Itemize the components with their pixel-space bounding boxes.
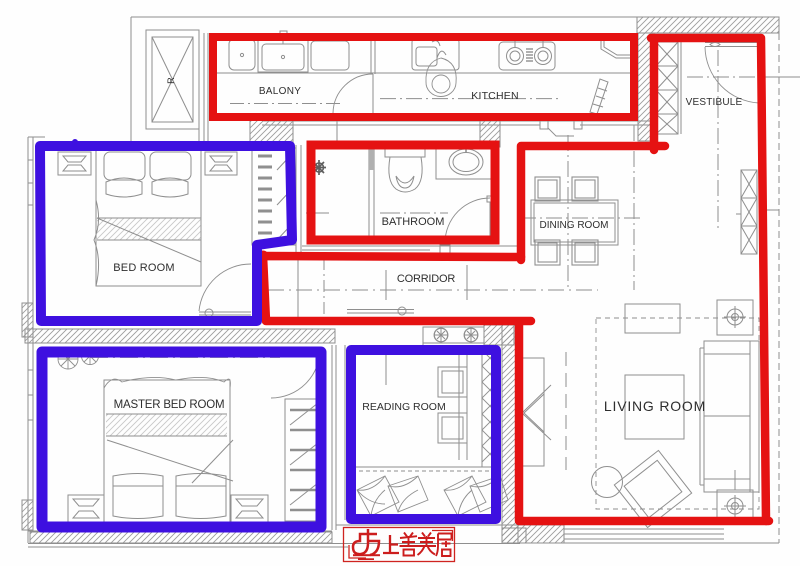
svg-text:READING ROOM: READING ROOM (362, 401, 445, 413)
svg-text:KITCHEN: KITCHEN (471, 90, 519, 102)
svg-text:BALONY: BALONY (259, 86, 301, 97)
svg-text:BATHROOM: BATHROOM (382, 216, 445, 228)
svg-text:MASTER BED ROOM: MASTER BED ROOM (114, 399, 225, 411)
svg-text:DINING ROOM: DINING ROOM (540, 220, 609, 231)
svg-text:VESTIBULE: VESTIBULE (686, 97, 743, 108)
svg-text:BED ROOM: BED ROOM (113, 262, 175, 274)
svg-text:LIVING ROOM: LIVING ROOM (604, 398, 706, 414)
svg-text:R: R (166, 76, 176, 84)
svg-text:CORRIDOR: CORRIDOR (397, 273, 456, 285)
